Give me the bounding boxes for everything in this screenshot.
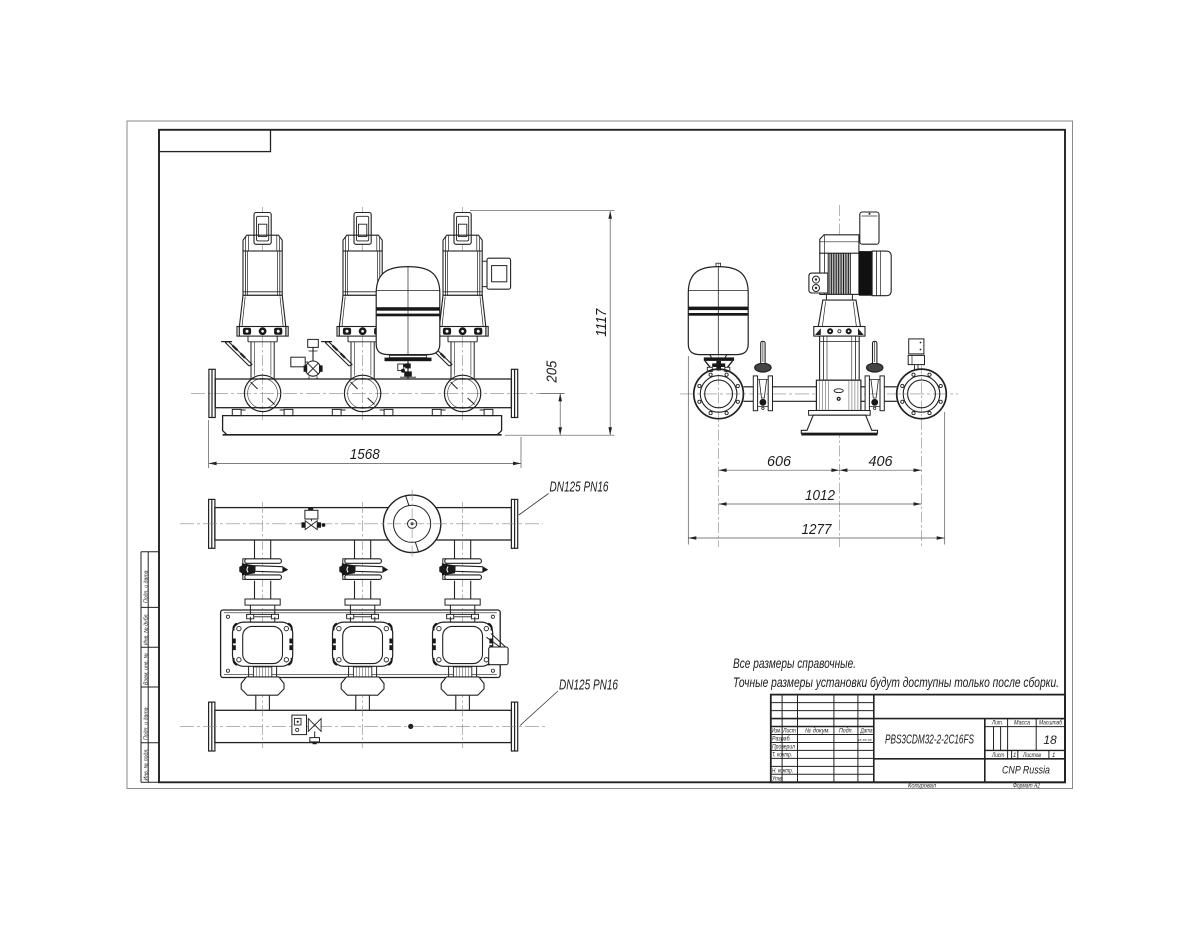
svg-text:Масса: Масса — [1014, 721, 1031, 727]
svg-text:Н. контр.: Н. контр. — [772, 768, 793, 774]
svg-text:Подп.: Подп. — [839, 729, 853, 735]
svg-text:Разраб.: Разраб. — [772, 737, 791, 743]
svg-text:606: 606 — [767, 454, 792, 470]
svg-text:Листов: Листов — [1022, 753, 1041, 759]
svg-text:Точные размеры установки будут: Точные размеры установки будут доступны … — [733, 674, 1059, 690]
svg-text:Инв. № подл.: Инв. № подл. — [143, 748, 149, 780]
svg-text:18: 18 — [1043, 733, 1057, 747]
svg-text:Проверил: Проверил — [772, 745, 796, 751]
svg-text:Утв.: Утв. — [771, 776, 783, 782]
svg-text:1012: 1012 — [805, 488, 835, 504]
svg-text:DN125 PN16: DN125 PN16 — [550, 480, 610, 496]
svg-text:Взам. инв. №: Взам. инв. № — [143, 653, 149, 685]
svg-text:1277: 1277 — [802, 522, 833, 538]
svg-text:1117: 1117 — [594, 308, 610, 337]
svg-text:406: 406 — [869, 454, 894, 470]
svg-text:Масштаб: Масштаб — [1039, 721, 1063, 727]
svg-text:№ докум.: № докум. — [805, 728, 830, 735]
svg-text:Подп. и дата: Подп. и дата — [143, 707, 149, 740]
svg-text:хх.хх.хх: хх.хх.хх — [857, 737, 873, 742]
svg-text:DN125 PN16: DN125 PN16 — [559, 678, 619, 694]
svg-text:CNP Russia: CNP Russia — [1002, 765, 1050, 777]
svg-text:1568: 1568 — [350, 447, 380, 463]
svg-text:1: 1 — [1013, 753, 1016, 759]
svg-text:205: 205 — [544, 360, 560, 384]
svg-text:Лист: Лист — [782, 729, 796, 735]
svg-text:Изм.: Изм. — [772, 729, 782, 735]
svg-text:Копировал: Копировал — [908, 784, 937, 790]
svg-text:PBS3CDM32-2-2C16FS: PBS3CDM32-2-2C16FS — [885, 732, 974, 747]
svg-text:Лит.: Лит. — [991, 721, 1003, 727]
svg-text:Т. контр.: Т. контр. — [772, 753, 792, 759]
svg-text:1: 1 — [1052, 753, 1055, 759]
svg-text:Дата: Дата — [860, 729, 873, 735]
svg-text:Формат А2: Формат А2 — [1013, 784, 1041, 790]
svg-text:Все размеры справочные.: Все размеры справочные. — [733, 655, 856, 671]
svg-text:Инв. № дубл.: Инв. № дубл. — [143, 613, 149, 645]
svg-text:Подп. и дата: Подп. и дата — [143, 570, 149, 603]
svg-text:Лист: Лист — [991, 753, 1004, 759]
